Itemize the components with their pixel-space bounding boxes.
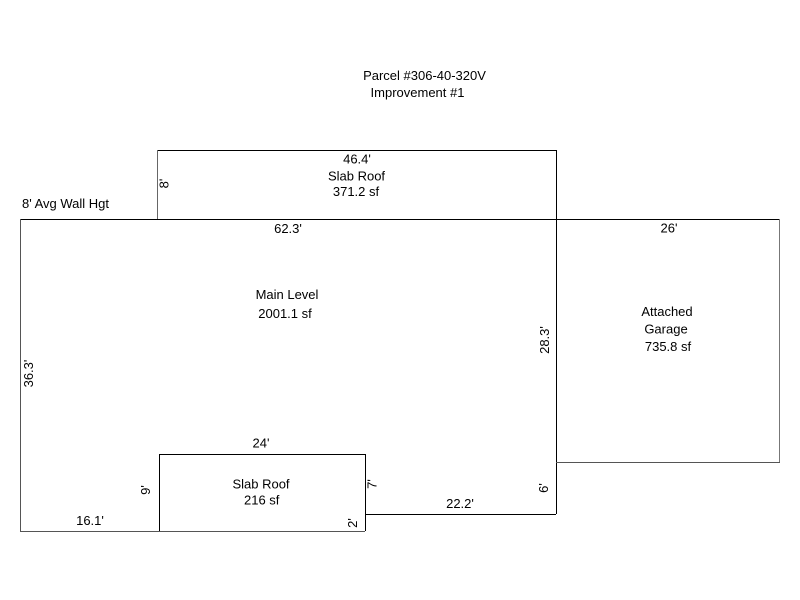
svg-text:46.4': 46.4' xyxy=(343,152,371,167)
svg-text:8' Avg Wall Hgt: 8' Avg Wall Hgt xyxy=(22,196,109,211)
svg-text:2': 2' xyxy=(345,518,360,528)
svg-text:Main Level: Main Level xyxy=(256,287,319,302)
svg-text:26': 26' xyxy=(661,221,678,236)
svg-text:735.8 sf: 735.8 sf xyxy=(645,339,692,354)
svg-text:Improvement #1: Improvement #1 xyxy=(371,85,465,100)
svg-text:216 sf: 216 sf xyxy=(244,493,280,508)
svg-text:8': 8' xyxy=(157,179,172,189)
svg-text:2001.1 sf: 2001.1 sf xyxy=(258,306,312,321)
svg-text:16.1': 16.1' xyxy=(76,513,104,528)
svg-text:Slab Roof: Slab Roof xyxy=(328,169,385,184)
svg-text:36.3': 36.3' xyxy=(21,360,36,388)
svg-text:62.3': 62.3' xyxy=(274,221,302,236)
svg-text:Garage: Garage xyxy=(644,322,687,337)
svg-text:22.2': 22.2' xyxy=(446,496,474,511)
svg-text:Slab Roof: Slab Roof xyxy=(232,477,289,492)
svg-text:28.3': 28.3' xyxy=(537,326,552,354)
svg-text:7': 7' xyxy=(365,479,380,489)
svg-text:24': 24' xyxy=(253,436,270,451)
svg-text:Parcel #306-40-320V: Parcel #306-40-320V xyxy=(363,68,486,83)
svg-text:Attached: Attached xyxy=(641,304,692,319)
svg-text:6': 6' xyxy=(536,483,551,493)
svg-text:9': 9' xyxy=(138,485,153,495)
svg-text:371.2 sf: 371.2 sf xyxy=(333,184,380,199)
